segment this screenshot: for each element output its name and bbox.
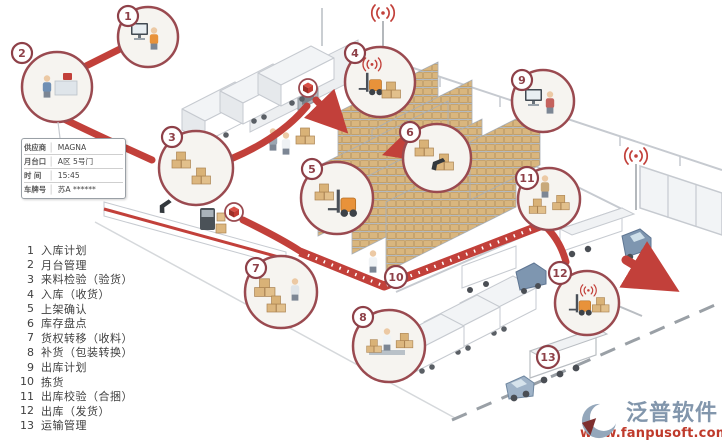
svg-text:12: 12 [552, 267, 567, 280]
card-value: 15:45 [54, 171, 80, 180]
legend-item-number: 2 [16, 258, 34, 271]
step-badge-9: 9 [512, 70, 532, 90]
card-row: 供应商 MAGNA [24, 141, 123, 155]
fanpu-logo: 泛普软件 www.fanpusoft.com [580, 402, 718, 441]
logo-name: 泛普软件 [626, 402, 718, 426]
card-label: 供应商 [24, 142, 52, 152]
svg-text:6: 6 [406, 126, 414, 139]
legend-item-label: 来料检验（验货） [41, 271, 133, 287]
card-row: 月台口 A区 5号门 [24, 155, 123, 169]
svg-text:8: 8 [359, 311, 367, 324]
legend-item-label: 补货（包装转换） [41, 344, 133, 360]
card-callout-line [58, 122, 60, 138]
step-badge-13: 13 [537, 346, 559, 368]
legend-item-number: 6 [16, 317, 34, 330]
package-cube-icon [299, 79, 317, 97]
legend-item-number: 1 [16, 244, 34, 257]
legend-item-number: 10 [16, 375, 34, 388]
legend-item: 8补货（包装转换） [16, 345, 186, 360]
legend-item-label: 库存盘点 [41, 315, 87, 331]
step-badge-4: 4 [345, 43, 365, 63]
process-legend: 1入库计划 2月台管理 3来料检验（验货） 4入库（收货） 5上架确认 6库存盘… [16, 243, 186, 433]
svg-text:4: 4 [351, 47, 359, 60]
svg-text:9: 9 [518, 74, 526, 87]
legend-item-number: 12 [16, 404, 34, 417]
wifi-signal-icon [625, 148, 647, 164]
svg-text:13: 13 [540, 351, 555, 364]
card-label: 车牌号 [24, 184, 52, 194]
step-badge-6: 6 [400, 122, 420, 142]
card-value: 苏A ****** [54, 184, 96, 194]
svg-text:5: 5 [308, 163, 316, 176]
legend-item: 9出库计划 [16, 360, 186, 375]
card-label: 月台口 [24, 156, 52, 166]
pallet-boxes [296, 128, 315, 144]
legend-item: 2月台管理 [16, 258, 186, 273]
legend-item-label: 货权转移（收料） [41, 330, 133, 346]
legend-item: 10拣货 [16, 374, 186, 389]
step-badge-5: 5 [302, 159, 322, 179]
warehouse-process-diagram: 1 2 3 4 5 6 7 8 9 10 11 12 13 供应商 MAGNA … [0, 0, 722, 443]
legend-item-label: 月台管理 [41, 257, 87, 273]
step-badge-1: 1 [118, 6, 138, 26]
legend-item-number: 11 [16, 390, 34, 403]
legend-item-label: 入库（收货） [41, 286, 110, 302]
svg-text:7: 7 [252, 262, 260, 275]
legend-item: 7货权转移（收料） [16, 331, 186, 346]
legend-item-label: 出库计划 [41, 359, 87, 375]
card-row: 时 间 15:45 [24, 169, 123, 183]
legend-item-label: 拣货 [41, 374, 64, 390]
legend-item: 13运输管理 [16, 418, 186, 433]
legend-item: 11出库校验（合捆） [16, 389, 186, 404]
legend-item-number: 7 [16, 331, 34, 344]
legend-item-label: 出库（发货） [41, 403, 110, 419]
package-cube-icon [225, 203, 243, 221]
legend-item-number: 3 [16, 273, 34, 286]
legend-item-number: 4 [16, 288, 34, 301]
label-printer-station [200, 208, 226, 233]
step-badge-10: 10 [385, 266, 407, 288]
legend-item-number: 13 [16, 419, 34, 432]
legend-item-label: 出库校验（合捆） [41, 388, 133, 404]
svg-text:1: 1 [124, 10, 132, 23]
legend-item: 3来料检验（验货） [16, 272, 186, 287]
card-label: 时 间 [24, 170, 52, 180]
vignette-step-2 [22, 52, 92, 122]
svg-text:3: 3 [168, 131, 176, 144]
wifi-signal-icon [372, 5, 394, 21]
step-badge-12: 12 [549, 262, 571, 284]
legend-item-label: 入库计划 [41, 242, 87, 258]
step-badge-3: 3 [162, 127, 182, 147]
legend-item-number: 9 [16, 361, 34, 374]
worker [369, 250, 377, 272]
legend-item-label: 运输管理 [41, 417, 87, 433]
legend-item: 4入库（收货） [16, 287, 186, 302]
legend-item: 12出库（发货） [16, 404, 186, 419]
legend-item-number: 5 [16, 302, 34, 315]
card-value: A区 5号门 [54, 156, 93, 166]
step-badge-2: 2 [12, 43, 32, 63]
worker [282, 132, 290, 154]
fanpu-logo-icon [580, 402, 618, 440]
trailer [258, 46, 334, 106]
svg-text:2: 2 [18, 47, 26, 60]
svg-text:11: 11 [519, 172, 534, 185]
svg-text:10: 10 [388, 271, 404, 284]
legend-item: 5上架确认 [16, 301, 186, 316]
dock-info-card: 供应商 MAGNA 月台口 A区 5号门 时 间 15:45 车牌号 苏A **… [21, 138, 126, 199]
legend-item: 6库存盘点 [16, 316, 186, 331]
card-value: MAGNA [54, 143, 86, 152]
legend-item-number: 8 [16, 346, 34, 359]
legend-item: 1入库计划 [16, 243, 186, 258]
step-badge-7: 7 [246, 258, 266, 278]
step-badge-11: 11 [516, 167, 538, 189]
card-row: 车牌号 苏A ****** [24, 183, 123, 196]
step-badge-8: 8 [353, 307, 373, 327]
legend-item-label: 上架确认 [41, 301, 87, 317]
